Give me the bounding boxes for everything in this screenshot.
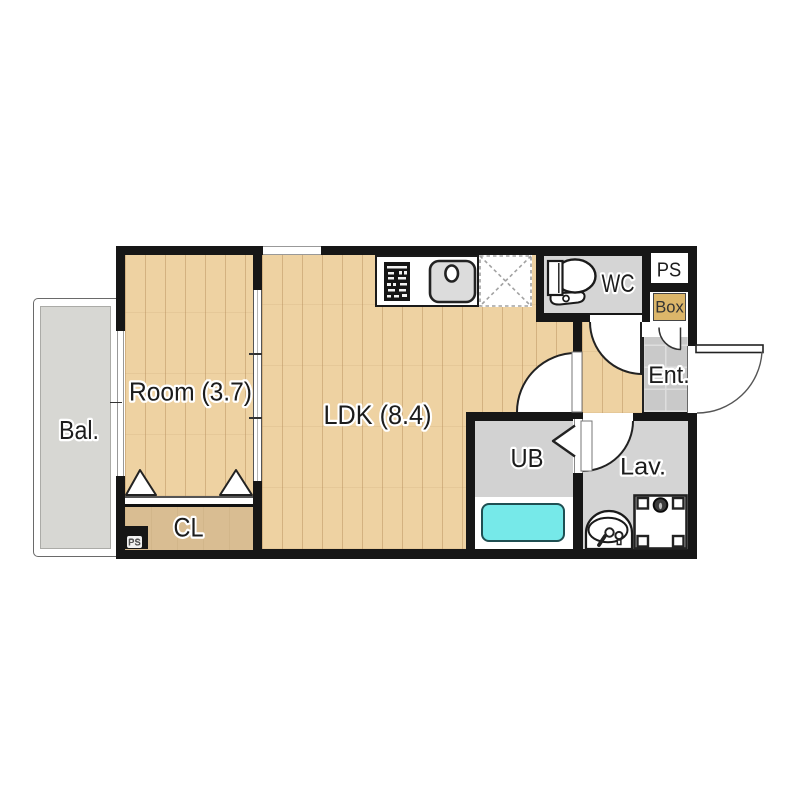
svg-text:Room (3.7): Room (3.7) — [129, 377, 252, 407]
svg-text:WC: WC — [602, 270, 635, 298]
svg-text:Bal.: Bal. — [59, 415, 99, 445]
svg-text:Box: Box — [655, 299, 684, 317]
svg-text:CL: CL — [174, 513, 204, 543]
svg-text:Ent.: Ent. — [648, 362, 690, 389]
svg-text:UB: UB — [511, 443, 544, 473]
svg-text:LDK (8.4): LDK (8.4) — [324, 400, 432, 430]
svg-text:PS: PS — [657, 260, 682, 282]
svg-text:PS: PS — [128, 538, 141, 549]
svg-text:Lav.: Lav. — [620, 454, 666, 481]
